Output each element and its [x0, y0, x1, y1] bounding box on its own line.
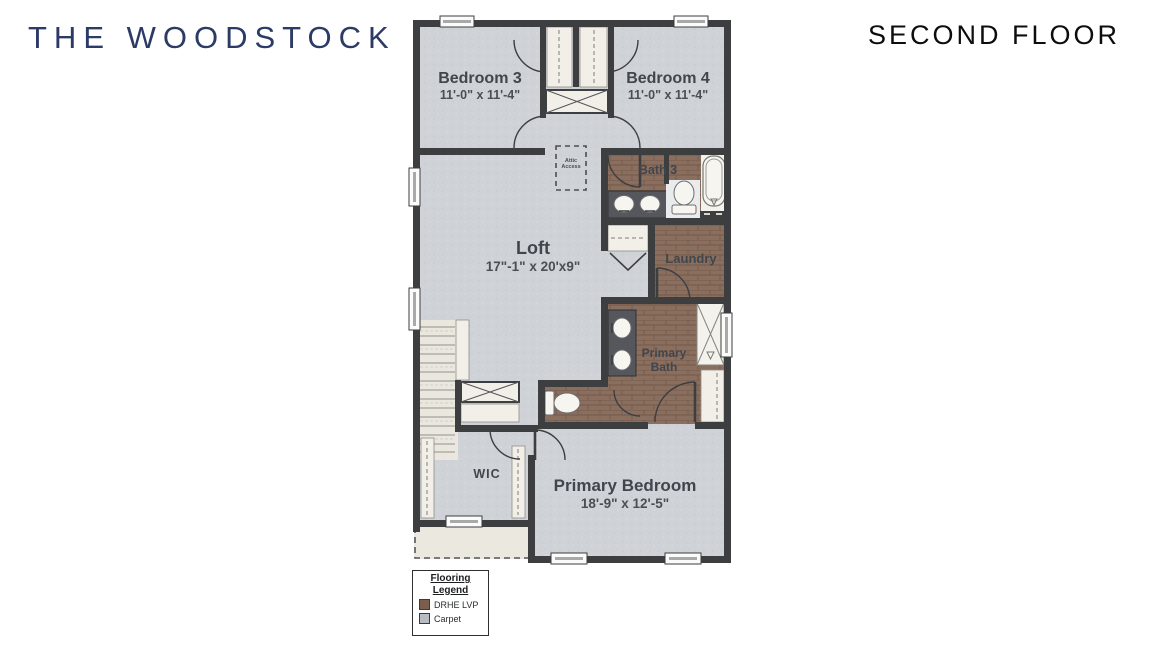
window: [665, 553, 701, 564]
sink-icon: [613, 350, 631, 370]
window: [409, 168, 420, 206]
sink-icon: [614, 196, 634, 213]
laundry-label: Laundry: [656, 252, 726, 267]
flooring-legend: Flooring Legend DRHE LVP Carpet: [412, 570, 489, 636]
room-dims: 17"-1" x 20'x9": [453, 259, 613, 275]
loft-label: Loft 17"-1" x 20'x9": [453, 238, 613, 274]
carpet-swatch: [419, 613, 430, 624]
room-name: Bedroom 4: [588, 70, 748, 88]
primary-linen-closet: [701, 370, 724, 422]
floor-plan-page: THE WOODSTOCK SECOND FLOOR: [0, 0, 1150, 651]
bedroom3-label: Bedroom 3 11'-0" x 11'-4": [400, 70, 560, 103]
window: [440, 16, 474, 27]
sink-icon: [613, 318, 631, 338]
room-dims: 11'-0" x 11'-4": [588, 88, 748, 102]
primary-vanity: [608, 310, 636, 376]
window: [409, 288, 420, 330]
primary-bedroom-label: Primary Bedroom 18'-9" x 12'-5": [535, 476, 715, 511]
room-name: Primary Bedroom: [535, 476, 715, 496]
legend-title: Flooring Legend: [413, 573, 488, 596]
window: [721, 313, 732, 357]
bath3-label: Bath 3: [628, 163, 688, 177]
water-closet-toilet: [545, 391, 580, 415]
sink-icon: [640, 196, 660, 213]
bathtub-icon: [700, 153, 726, 218]
room-name: Bedroom 3: [400, 70, 560, 88]
bedroom4-label: Bedroom 4 11'-0" x 11'-4": [588, 70, 748, 103]
window: [551, 553, 587, 564]
legend-item-carpet: Carpet: [419, 613, 488, 624]
wic-label: WIC: [462, 467, 512, 481]
window: [446, 516, 482, 527]
room-name: Loft: [453, 238, 613, 259]
attic-access-label: Attic Access: [556, 158, 586, 170]
toilet-icon: [545, 391, 580, 415]
legend-item-lvp: DRHE LVP: [419, 599, 488, 610]
primary-bath-label: Primary Bath: [633, 347, 695, 375]
open-below-dashed-zone: [414, 527, 532, 559]
legend-label: Carpet: [434, 614, 461, 624]
floor-plan: [0, 0, 1150, 651]
legend-label: DRHE LVP: [434, 600, 478, 610]
bath3-vanity: [608, 191, 668, 218]
room-dims: 18'-9" x 12'-5": [535, 496, 715, 512]
lvp-swatch: [419, 599, 430, 610]
loft-shelf: [461, 382, 519, 422]
window: [674, 16, 708, 27]
room-dims: 11'-0" x 11'-4": [400, 88, 560, 102]
toilet-icon: [672, 181, 696, 214]
shower-icon: [697, 303, 724, 365]
